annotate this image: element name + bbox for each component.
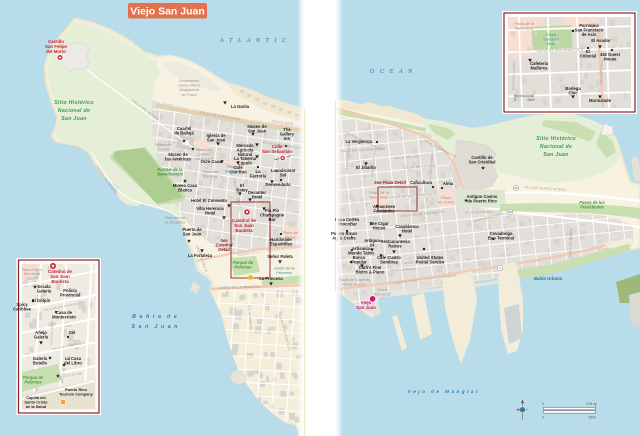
svg-text:Parque dePalomas: Parque dePalomas — [23, 375, 44, 385]
svg-text:Iglesia deSan José: Iglesia deSan José — [206, 133, 226, 143]
svg-text:Parque de laBeneficencia: Parque de laBeneficencia — [157, 167, 184, 177]
svg-text:AñejoGalería: AñejoGalería — [34, 330, 49, 340]
svg-text:Puerta deSan Juan: Puerta deSan Juan — [182, 227, 202, 237]
svg-text:Parque dePalomas: Parque dePalomas — [233, 260, 254, 270]
svg-text:0: 0 — [514, 98, 516, 102]
svg-text:CovadongaBus Terminal: CovadongaBus Terminal — [488, 231, 514, 241]
svg-text:El Asador: El Asador — [591, 38, 611, 43]
svg-text:Plaza de laBarandilla: Plaza de laBarandilla — [369, 190, 390, 200]
svg-text:Carli's FineBistro & Piano: Carli's FineBistro & Piano — [356, 265, 385, 275]
svg-text:La Casadel Libro: La Casadel Libro — [64, 356, 82, 366]
svg-text:Marmalade: Marmalade — [589, 98, 612, 103]
svg-text:Bahía Urbana: Bahía Urbana — [534, 276, 563, 281]
svg-text:Plaza de laBarandilla: Plaza de laBarandilla — [514, 21, 535, 31]
svg-text:25: 25 — [514, 186, 518, 190]
svg-text:Puerto RicanArt & Crafts: Puerto RicanArt & Crafts — [331, 231, 357, 241]
svg-text:Plaza delCuartel: Plaza delCuartel — [156, 142, 173, 152]
svg-text:Plaza delSoportal: Plaza delSoportal — [202, 169, 219, 179]
svg-text:O C E A N: O C E A N — [370, 68, 414, 75]
svg-text:La Princesa: La Princesa — [259, 276, 283, 281]
svg-text:Plaza de EugenioMaría Hostos: Plaza de EugenioMaría Hostos — [338, 277, 370, 287]
svg-text:Plazuela dela Rogativa: Plazuela dela Rogativa — [165, 215, 187, 225]
svg-text:El Golpín: El Golpín — [32, 298, 51, 303]
svg-text:A T L A N T I C: A T L A N T I C — [219, 37, 288, 44]
svg-text:0.25 mi: 0.25 mi — [586, 402, 597, 406]
svg-text:V e j o d e M a n g l a r: V e j o d e M a n g l a r — [408, 389, 479, 394]
svg-text:Señor Paleta: Señor Paleta — [267, 254, 293, 259]
svg-text:0: 0 — [542, 402, 544, 406]
svg-text:See Plaza Detail: See Plaza Detail — [374, 180, 407, 185]
svg-text:Alma: Alma — [443, 181, 454, 186]
svg-text:BancoPopular: BancoPopular — [351, 255, 367, 265]
svg-text:Desvendudo: Desvendudo — [265, 182, 291, 187]
svg-text:400m: 400m — [527, 98, 535, 102]
svg-text:Antiguo Casinode Puerto Rico: Antiguo Casinode Puerto Rico — [467, 194, 498, 204]
svg-text:0: 0 — [542, 416, 544, 420]
svg-text:EscalaGalería: EscalaGalería — [37, 284, 52, 294]
svg-text:Paseo de losPresidentes: Paseo de losPresidentes — [579, 200, 605, 210]
svg-text:Viejo San Juan: Viejo San Juan — [130, 6, 205, 18]
svg-text:Hotel El Convento: Hotel El Convento — [191, 198, 228, 203]
svg-text:25: 25 — [508, 210, 512, 214]
svg-text:Castillo deSan Cristóbal: Castillo deSan Cristóbal — [469, 155, 496, 165]
svg-text:Ocre Casa: Ocre Casa — [201, 159, 222, 164]
svg-text:200m: 200m — [588, 416, 596, 420]
svg-text:Capilla delSanto Cristode la S: Capilla delSanto Cristode la Salud — [24, 395, 48, 409]
svg-text:Olé: Olé — [69, 330, 76, 335]
svg-text:Museo deSan Juan: Museo deSan Juan — [247, 124, 267, 134]
svg-text:CafeteríaMallorca: CafeteríaMallorca — [530, 61, 549, 71]
svg-text:Museo delas Américas: Museo delas Américas — [165, 152, 191, 162]
svg-text:GaleríaBotello: GaleríaBotello — [33, 356, 48, 366]
svg-text:La Garita: La Garita — [231, 104, 250, 109]
